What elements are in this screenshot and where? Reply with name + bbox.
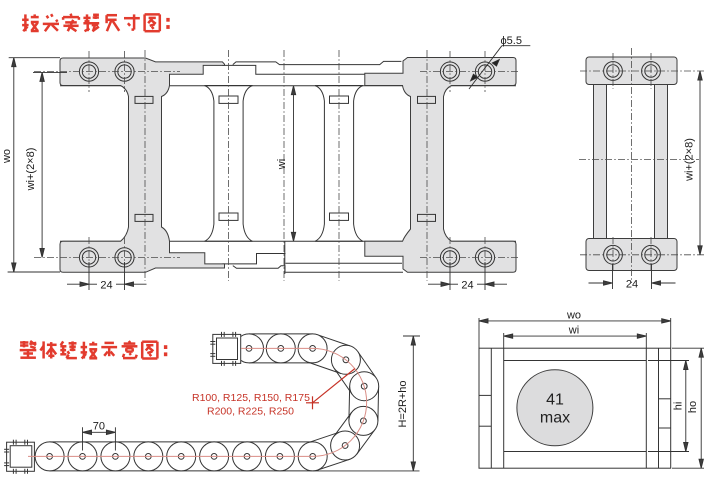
svg-text:24: 24 [100,280,112,292]
svg-text:24: 24 [626,279,638,291]
svg-text:H=2R+ho: H=2R+ho [397,380,409,427]
svg-text:ϕ5.5: ϕ5.5 [501,35,522,47]
svg-text:hi: hi [673,402,685,411]
svg-text:wi: wi [276,159,288,170]
svg-text:wo: wo [566,309,581,321]
svg-text:24: 24 [461,280,473,292]
svg-text:70: 70 [93,420,105,432]
svg-text:wo: wo [1,149,13,164]
svg-text:wi+(2×8): wi+(2×8) [25,148,37,192]
svg-text:R100, R125, R150, R175: R100, R125, R150, R175 [192,392,310,404]
svg-text:41: 41 [546,392,564,409]
svg-text:max: max [540,410,570,427]
svg-text:wi+(2×8): wi+(2×8) [684,138,696,182]
svg-text:ho: ho [687,401,699,413]
svg-text:wi: wi [568,325,579,337]
svg-text:R200, R225, R250: R200, R225, R250 [207,406,294,418]
